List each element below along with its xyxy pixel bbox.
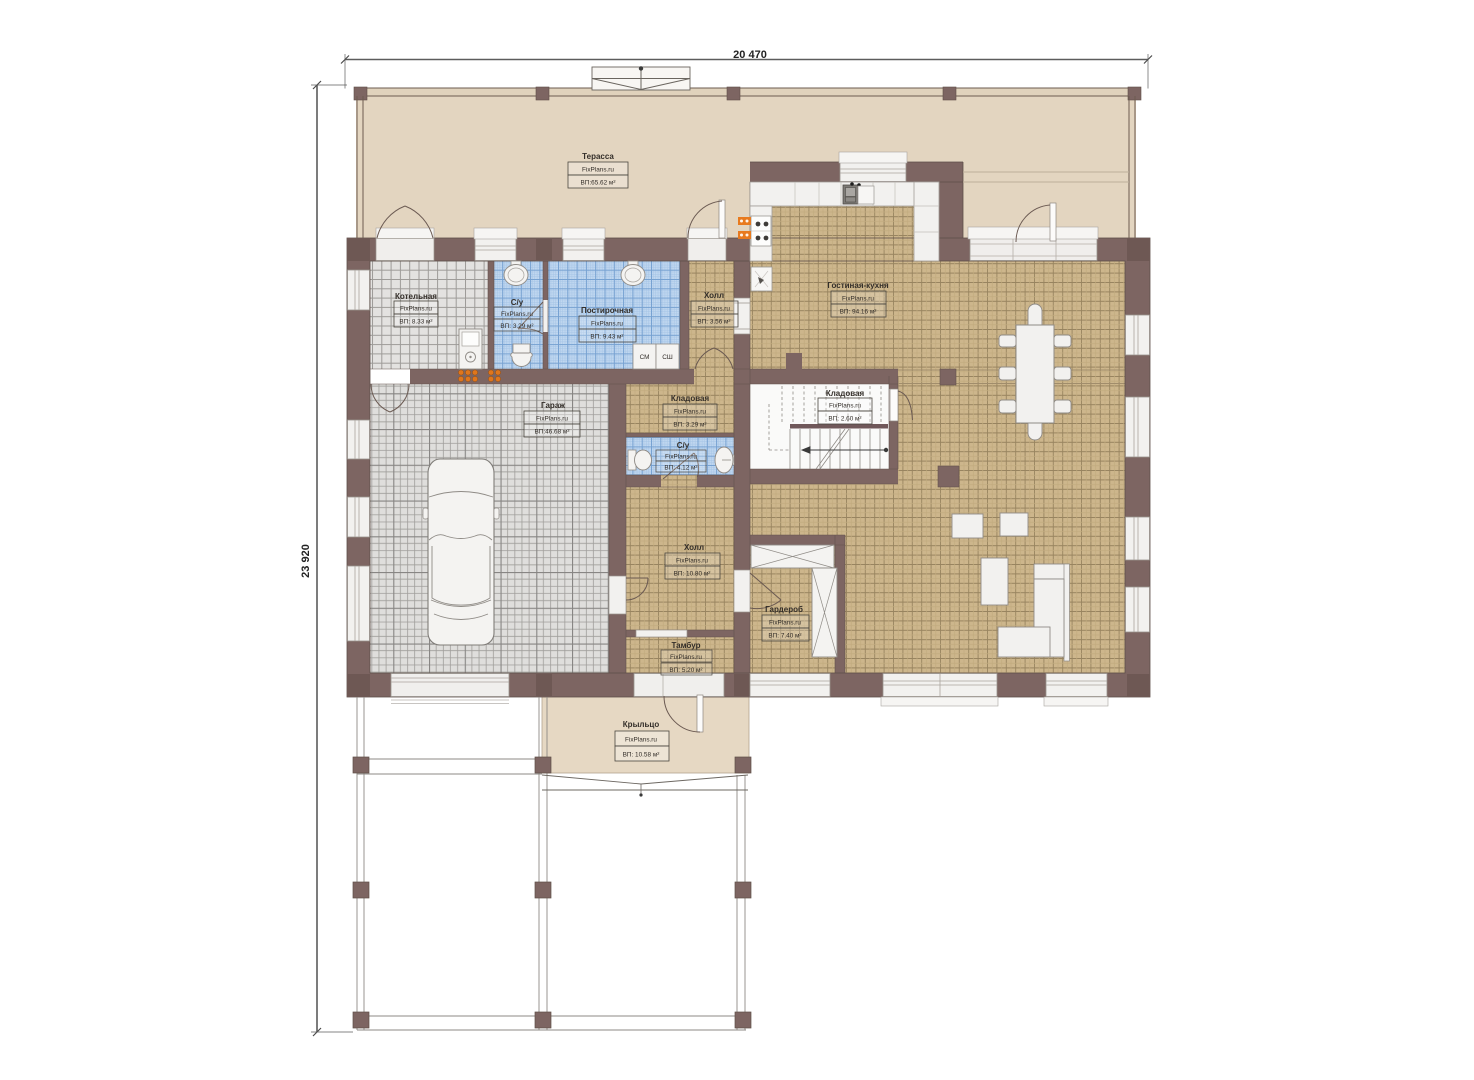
svg-text:ВП: 10.80 м²: ВП: 10.80 м² — [674, 571, 711, 578]
svg-text:Гардероб: Гардероб — [765, 605, 803, 614]
svg-text:ВП: 7.40 м²: ВП: 7.40 м² — [768, 633, 801, 640]
svg-text:ВП: 4.12 м²: ВП: 4.12 м² — [664, 465, 697, 472]
svg-text:FixPlans.ru: FixPlans.ru — [501, 311, 533, 318]
svg-text:ВП:65.62 м²: ВП:65.62 м² — [581, 180, 616, 187]
svg-text:ВП:46.68 м²: ВП:46.68 м² — [535, 429, 570, 436]
svg-text:ВП: 8.33 м²: ВП: 8.33 м² — [399, 319, 432, 326]
svg-text:FixPlans.ru: FixPlans.ru — [536, 416, 568, 423]
svg-text:Гараж: Гараж — [541, 401, 565, 410]
svg-text:FixPlans.ru: FixPlans.ru — [582, 167, 614, 174]
svg-text:Терасса: Терасса — [582, 152, 614, 161]
svg-text:ВП: 94.16 м²: ВП: 94.16 м² — [840, 309, 877, 316]
svg-text:Кладовая: Кладовая — [826, 389, 865, 398]
svg-text:Постирочная: Постирочная — [581, 306, 633, 315]
svg-text:FixPlans.ru: FixPlans.ru — [769, 620, 801, 627]
svg-text:С/у: С/у — [511, 298, 524, 307]
svg-text:FixPlans.ru: FixPlans.ru — [665, 454, 697, 461]
svg-text:ВП: 9.43 м²: ВП: 9.43 м² — [590, 334, 623, 341]
svg-text:СШ: СШ — [662, 354, 673, 361]
svg-text:FixPlans.ru: FixPlans.ru — [670, 654, 702, 661]
svg-text:20 470: 20 470 — [733, 49, 767, 61]
svg-text:FixPlans.ru: FixPlans.ru — [625, 737, 657, 744]
svg-text:ВП: 3.29 м²: ВП: 3.29 м² — [673, 422, 706, 429]
svg-text:FixPlans.ru: FixPlans.ru — [674, 409, 706, 416]
svg-text:FixPlans.ru: FixPlans.ru — [591, 321, 623, 328]
svg-text:ВП: 5.20 м²: ВП: 5.20 м² — [669, 667, 702, 674]
svg-text:Крыльцо: Крыльцо — [623, 720, 660, 729]
svg-text:FixPlans.ru: FixPlans.ru — [829, 403, 861, 410]
svg-text:ВП: 10.58 м²: ВП: 10.58 м² — [623, 752, 660, 759]
svg-text:ВП: 2.60 м²: ВП: 2.60 м² — [828, 416, 861, 423]
svg-text:23 920: 23 920 — [300, 544, 312, 578]
svg-text:Кладовая: Кладовая — [671, 394, 710, 403]
svg-text:Котельная: Котельная — [395, 292, 437, 301]
svg-text:С/у: С/у — [677, 441, 690, 450]
svg-text:СМ: СМ — [640, 354, 650, 361]
svg-text:FixPlans.ru: FixPlans.ru — [698, 306, 730, 313]
svg-text:ВП: 3.29 м²: ВП: 3.29 м² — [500, 323, 533, 330]
svg-text:Гостиная-кухня: Гостиная-кухня — [827, 281, 889, 290]
svg-text:FixPlans.ru: FixPlans.ru — [842, 296, 874, 303]
svg-text:Тамбур: Тамбур — [671, 641, 700, 650]
svg-text:Холл: Холл — [684, 543, 704, 552]
svg-text:FixPlans.ru: FixPlans.ru — [676, 558, 708, 565]
svg-text:Холл: Холл — [704, 291, 724, 300]
svg-text:FixPlans.ru: FixPlans.ru — [400, 306, 432, 313]
svg-text:ВП: 3.56 м²: ВП: 3.56 м² — [697, 319, 730, 326]
